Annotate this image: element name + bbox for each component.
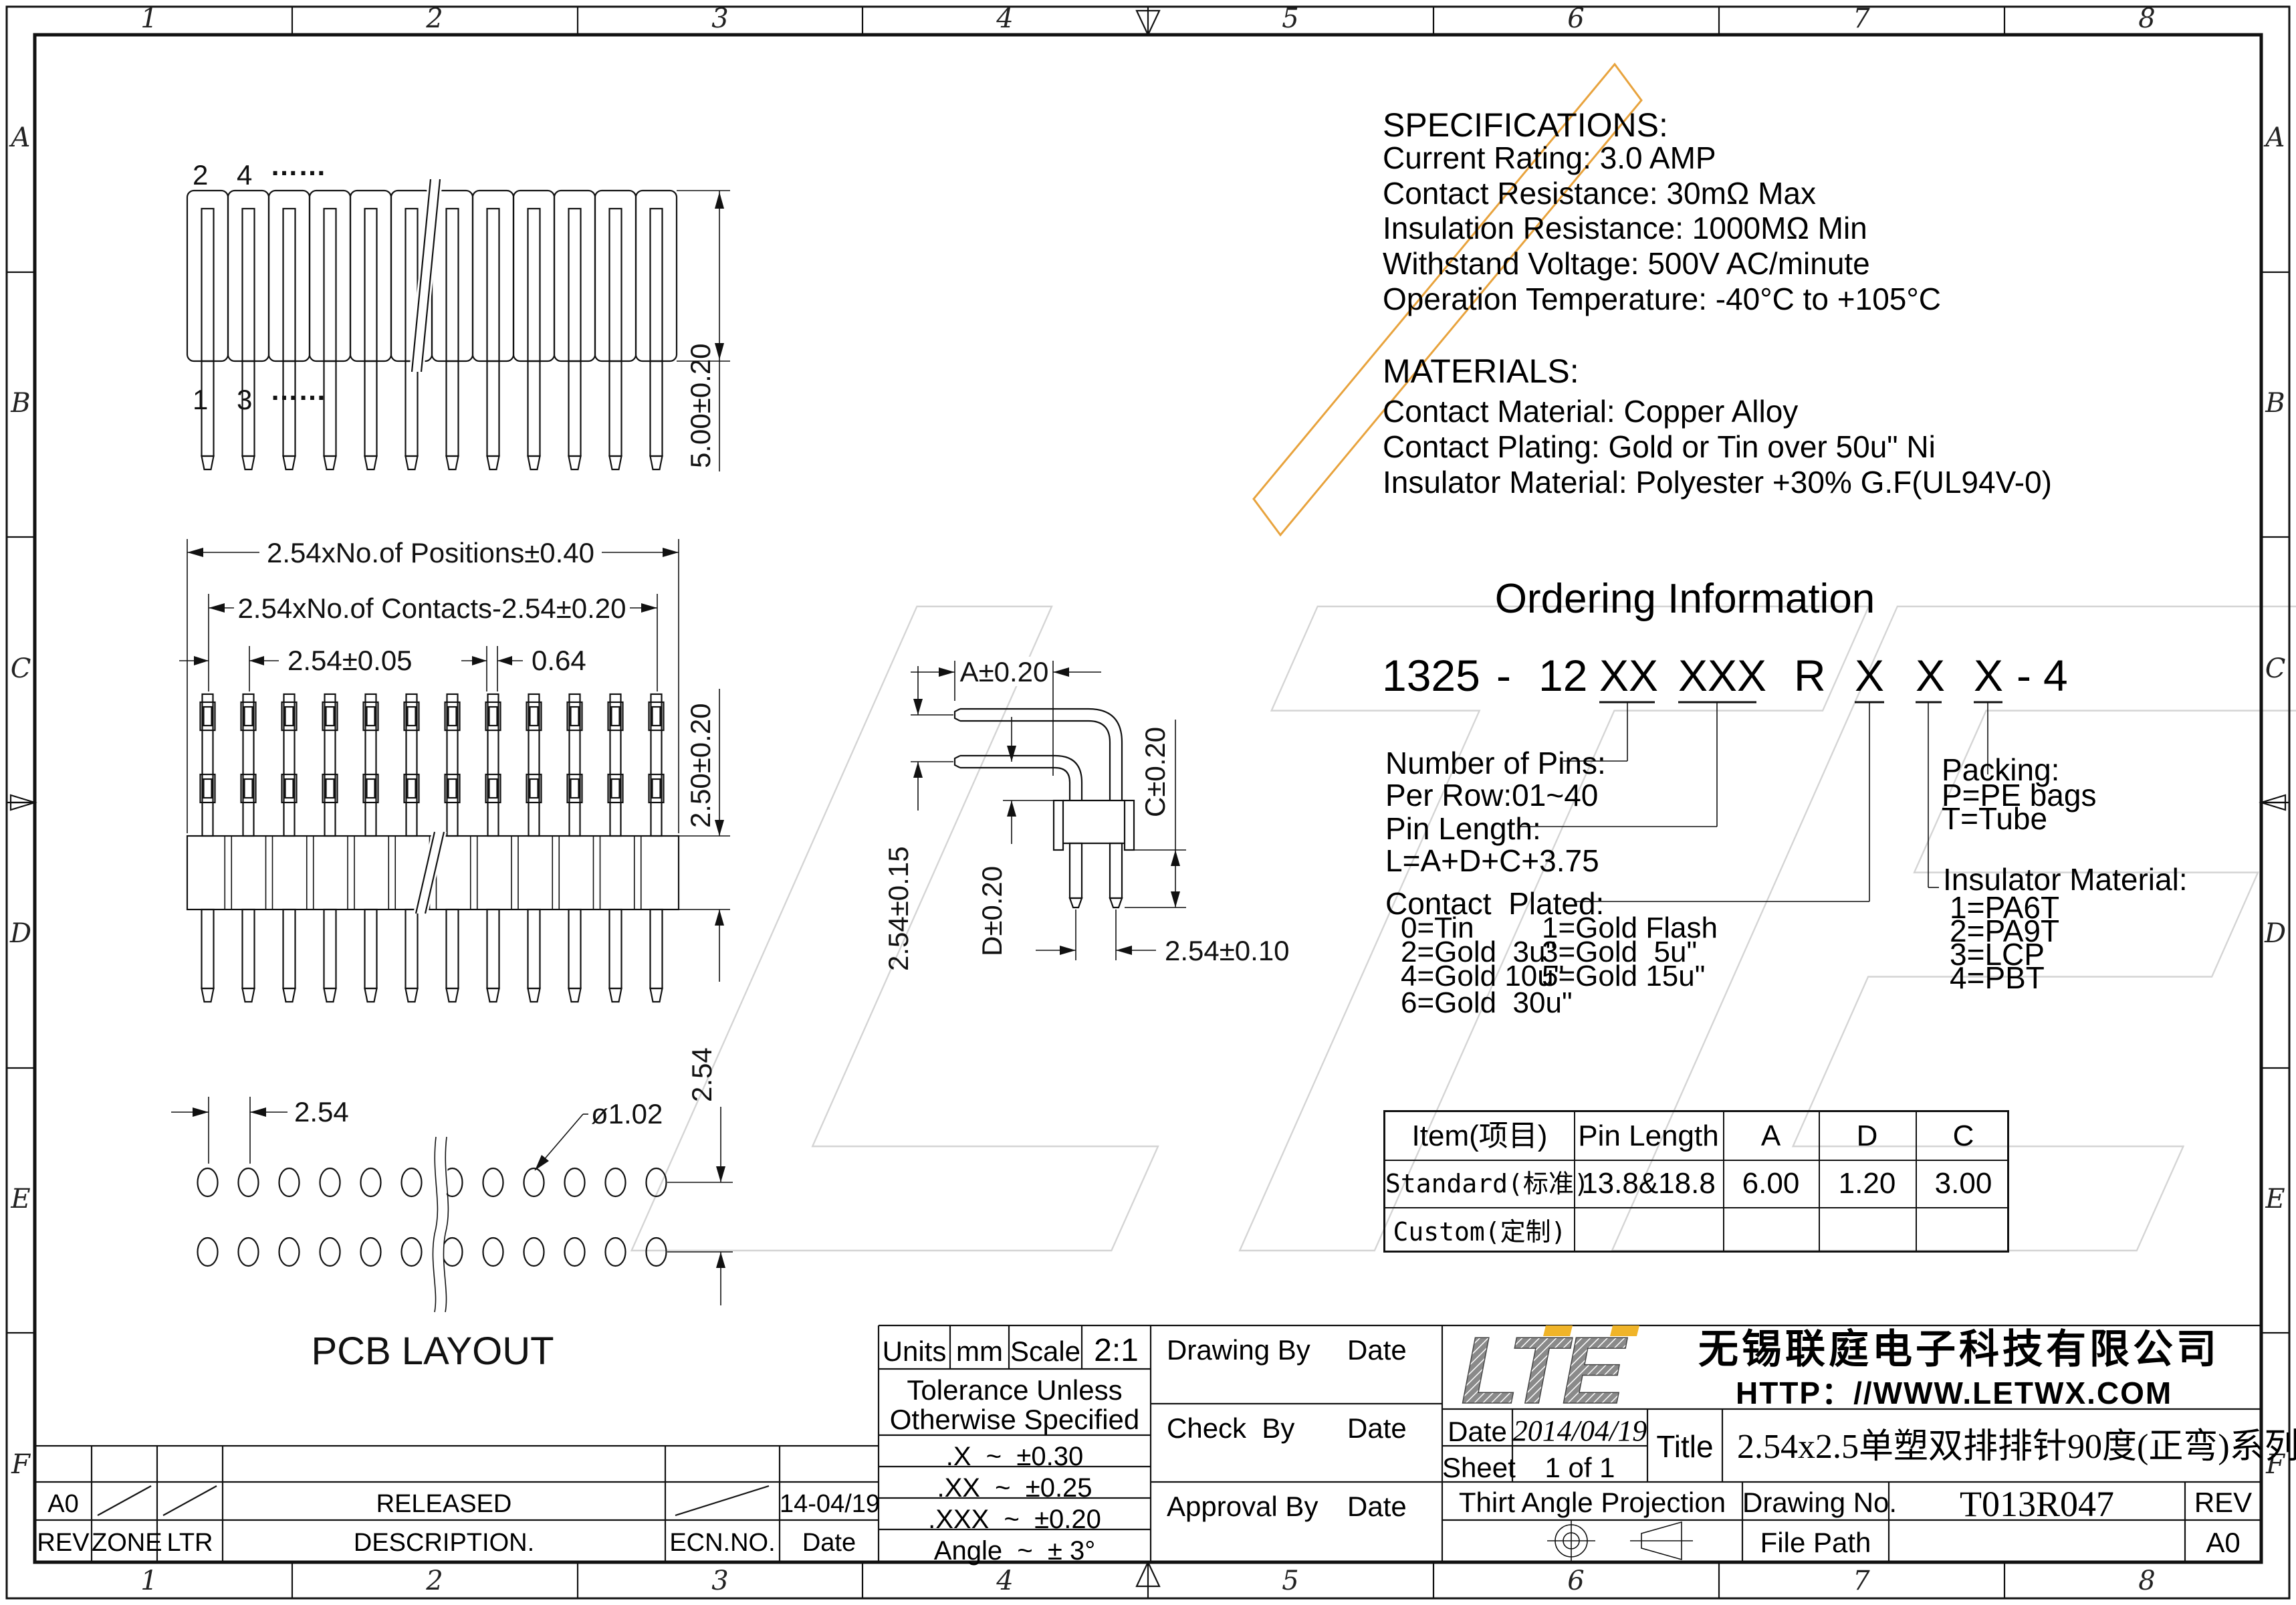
table-cell-standard-d: 1.20 bbox=[1819, 1169, 1916, 1198]
dim-housing-label: 2.50±0.20 bbox=[685, 703, 716, 828]
check-by-label: Check By bbox=[1167, 1414, 1294, 1442]
ecn-no-header: ECN.NO. bbox=[665, 1530, 780, 1556]
zone-row-left-B: B bbox=[1, 390, 41, 417]
label-pin-length-formula: L=A+D+C+3.75 bbox=[1385, 845, 1599, 876]
logo-accent-2 bbox=[1610, 1325, 1639, 1336]
dim-c-label: C±0.20 bbox=[1139, 727, 1171, 817]
material-line: Insulator Material: Polyester +30% G.F(U… bbox=[1383, 467, 2052, 498]
projection-symbol bbox=[1547, 1521, 1693, 1561]
part-seg-xxx: XXX bbox=[1678, 653, 1766, 698]
zone-col-top-2: 2 bbox=[415, 5, 455, 32]
date-label: Date bbox=[1442, 1418, 1512, 1446]
dim-contacts-label: 2.54xNo.of Contacts-2.54±0.20 bbox=[237, 593, 626, 624]
units-label: Units bbox=[879, 1337, 950, 1366]
front-view-extras bbox=[409, 179, 730, 471]
rev-label: REV bbox=[2185, 1489, 2261, 1517]
sheet-size-value: A0 bbox=[2185, 1529, 2261, 1557]
material-line: Contact Plating: Gold or Tin over 50u" N… bbox=[1383, 431, 1936, 462]
table-header-d: D bbox=[1819, 1121, 1916, 1151]
table-header-item: Item(项目) bbox=[1385, 1121, 1574, 1151]
logo-accent-1 bbox=[1543, 1325, 1573, 1336]
revision-description-value: RELEASED bbox=[223, 1491, 665, 1517]
pin-dots-top: …… bbox=[270, 150, 326, 181]
drawing-no-value: T013R047 bbox=[1889, 1486, 2185, 1522]
company-name: 无锡联庭电子科技有限公司 bbox=[1698, 1329, 2220, 1370]
zone-col-bottom-1: 1 bbox=[129, 1568, 169, 1594]
pin-dots-bottom: …… bbox=[270, 374, 326, 406]
table-cell-standard-c: 3.00 bbox=[1916, 1169, 2011, 1198]
zone-col-top-5: 5 bbox=[1270, 5, 1310, 32]
dim-d-label: D±0.20 bbox=[976, 866, 1008, 956]
dim-width-label: 0.64 bbox=[532, 645, 586, 676]
zone-col-bottom-2: 2 bbox=[415, 1568, 455, 1594]
engineering-drawing-sheet: { "frame": { "zone_columns": ["1","2","3… bbox=[0, 0, 2296, 1605]
drawing-by-label: Drawing By bbox=[1167, 1336, 1310, 1364]
pin-number-3: 3 bbox=[237, 384, 252, 415]
zone-row-right-A: A bbox=[2255, 124, 2295, 151]
table-header-c: C bbox=[1916, 1121, 2011, 1151]
tolerance-xx: .XX ~ ±0.25 bbox=[879, 1475, 1151, 1501]
zone-col-top-3: 3 bbox=[700, 5, 740, 32]
zone-col-top-1: 1 bbox=[129, 5, 169, 32]
spec-line: Insulation Resistance: 1000MΩ Min bbox=[1383, 213, 1867, 243]
table-cell-standard-pinlength: 13.8&18.8 bbox=[1574, 1169, 1723, 1198]
dim-positions-label: 2.54xNo.of Positions±0.40 bbox=[267, 537, 594, 568]
ordering-title: Ordering Information bbox=[1417, 578, 1952, 620]
part-seg-4: 4 bbox=[2043, 653, 2068, 698]
spec-line: Current Rating: 3.0 AMP bbox=[1383, 142, 1716, 173]
spec-line: Operation Temperature: -40°C to +105°C bbox=[1383, 284, 1941, 314]
table-header-pin-length: Pin Length bbox=[1574, 1121, 1723, 1151]
zone-col-bottom-8: 8 bbox=[2127, 1568, 2167, 1594]
pcb-pitch-label: 2.54 bbox=[294, 1096, 349, 1128]
pin-number-2: 2 bbox=[193, 159, 208, 191]
scale-label: Scale bbox=[1009, 1337, 1082, 1366]
check-by-date-label: Date bbox=[1347, 1414, 1407, 1442]
table-cell-standard: Standard(标准) bbox=[1385, 1171, 1574, 1196]
part-seg-dash: - bbox=[1496, 653, 1511, 698]
part-seg-x1: X bbox=[1855, 653, 1884, 698]
lte-logo: LTE bbox=[1461, 1317, 1639, 1424]
pin-number-1: 1 bbox=[193, 384, 208, 415]
dim-pitch-label: 2.54±0.05 bbox=[288, 645, 413, 676]
label-pin-length: Pin Length: bbox=[1385, 813, 1541, 844]
table-cell-standard-a: 6.00 bbox=[1723, 1169, 1819, 1198]
plating-option: 6=Gold 30u" bbox=[1401, 988, 1573, 1018]
date-header: Date bbox=[780, 1530, 879, 1556]
zone-col-bottom-5: 5 bbox=[1270, 1568, 1310, 1594]
zone-col-top-7: 7 bbox=[1841, 5, 1881, 32]
spec-line: Withstand Voltage: 500V AC/minute bbox=[1383, 248, 1870, 279]
material-line: Contact Material: Copper Alloy bbox=[1383, 396, 1798, 427]
revision-date-value: 14-04/19 bbox=[780, 1491, 879, 1517]
pcb-hole-label: ø1.02 bbox=[591, 1098, 663, 1130]
sheet-value: 1 of 1 bbox=[1512, 1454, 1647, 1482]
packing-option: T=Tube bbox=[1942, 803, 2047, 834]
pcb-row-pitch-label: 2.54 bbox=[686, 1047, 717, 1102]
company-website: HTTP：//WWW.LETWX.COM bbox=[1736, 1378, 2172, 1408]
zone-row-right-E: E bbox=[2255, 1186, 2295, 1212]
table-cell-custom: Custom(定制) bbox=[1385, 1219, 1574, 1245]
pcb-layout-title: PCB LAYOUT bbox=[311, 1329, 554, 1373]
zone-col-bottom-4: 4 bbox=[985, 1568, 1025, 1594]
part-seg-x2: X bbox=[1916, 653, 1945, 698]
front-view-dim-texts: 2 4 …… 1 3 …… 5.00±0.20 bbox=[193, 150, 716, 468]
title-label: Title bbox=[1647, 1431, 1722, 1462]
zone-row-left-A: A bbox=[1, 124, 41, 151]
zone-row-left-C: C bbox=[1, 655, 41, 682]
zone-row-left-F: F bbox=[1, 1451, 41, 1478]
part-seg-r: R bbox=[1794, 653, 1826, 698]
part-seg-x3: X bbox=[1974, 653, 2003, 698]
specifications-heading: SPECIFICATIONS: bbox=[1383, 108, 1668, 142]
tolerance-xxx: .XXX ~ ±0.20 bbox=[879, 1506, 1151, 1533]
scale-value: 2:1 bbox=[1082, 1335, 1151, 1367]
part-seg-12: 12 bbox=[1538, 653, 1587, 698]
zone-row-left-D: D bbox=[1, 920, 41, 947]
revision-rev-value: A0 bbox=[35, 1491, 92, 1517]
title-value: 2.54x2.5单塑双排排针90度(正弯)系列 bbox=[1737, 1430, 2296, 1465]
zone-col-top-8: 8 bbox=[2127, 5, 2167, 32]
part-seg-1325: 1325 bbox=[1382, 653, 1480, 698]
zone-row-right-D: D bbox=[2255, 920, 2295, 947]
part-seg-xx: XX bbox=[1599, 653, 1658, 698]
file-path-label: File Path bbox=[1742, 1529, 1889, 1557]
dim-a-label: A±0.20 bbox=[960, 656, 1049, 687]
drawing-by-date-label: Date bbox=[1347, 1336, 1407, 1364]
label-per-row: Per Row:01~40 bbox=[1385, 780, 1598, 811]
pin-number-4: 4 bbox=[237, 159, 252, 191]
rev-header: REV bbox=[35, 1530, 92, 1556]
projection-label: Thirt Angle Projection bbox=[1442, 1489, 1742, 1517]
ltr-header: LTR bbox=[157, 1530, 223, 1556]
description-header: DESCRIPTION. bbox=[223, 1530, 665, 1556]
part-seg-dash2: - bbox=[2017, 653, 2031, 698]
sheet-label: Sheet bbox=[1442, 1454, 1512, 1482]
zone-header: ZONE bbox=[92, 1530, 157, 1556]
zone-row-right-B: B bbox=[2255, 390, 2295, 417]
zone-row-right-C: C bbox=[2255, 655, 2295, 682]
dim-row-pitch-label: 2.54±0.15 bbox=[883, 846, 914, 971]
spec-line: Contact Resistance: 30mΩ Max bbox=[1383, 178, 1816, 209]
units-value: mm bbox=[950, 1337, 1009, 1366]
tolerance-angle: Angle ~ ± 3° bbox=[879, 1537, 1151, 1564]
zone-row-left-E: E bbox=[1, 1186, 41, 1212]
approval-by-date-label: Date bbox=[1347, 1493, 1407, 1521]
insulator-option: 4=PBT bbox=[1950, 962, 2045, 993]
drawing-no-label: Drawing No. bbox=[1742, 1489, 1889, 1517]
zone-col-bottom-7: 7 bbox=[1841, 1568, 1881, 1594]
top-view-dim-texts: 2.54xNo.of Positions±0.40 2.54xNo.of Con… bbox=[237, 537, 716, 828]
zone-col-top-4: 4 bbox=[985, 5, 1025, 32]
tolerance-note-line2: Otherwise Specified bbox=[879, 1406, 1151, 1434]
dim-tail-pitch-label: 2.54±0.10 bbox=[1165, 935, 1290, 966]
table-header-a: A bbox=[1723, 1121, 1819, 1151]
tolerance-x: .X ~ ±0.30 bbox=[879, 1443, 1151, 1470]
zone-col-top-6: 6 bbox=[1556, 5, 1596, 32]
zone-col-bottom-3: 3 bbox=[700, 1568, 740, 1594]
spec-table: Item(项目) Pin Length A D C Standard(标准) 1… bbox=[1383, 1110, 2009, 1253]
dim-height-label: 5.00±0.20 bbox=[685, 343, 716, 468]
zone-col-bottom-6: 6 bbox=[1556, 1568, 1596, 1594]
tolerance-note-line1: Tolerance Unless bbox=[879, 1376, 1151, 1404]
date-value: 2014/04/19 bbox=[1512, 1416, 1647, 1446]
label-number-of-pins: Number of Pins: bbox=[1385, 748, 1606, 778]
materials-heading: MATERIALS: bbox=[1383, 354, 1579, 388]
approval-by-label: Approval By bbox=[1167, 1493, 1318, 1521]
